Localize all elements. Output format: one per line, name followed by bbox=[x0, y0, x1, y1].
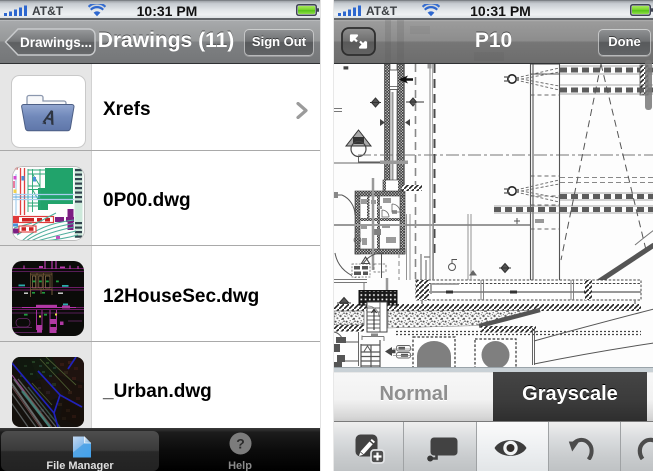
svg-text:?: ? bbox=[236, 436, 245, 452]
